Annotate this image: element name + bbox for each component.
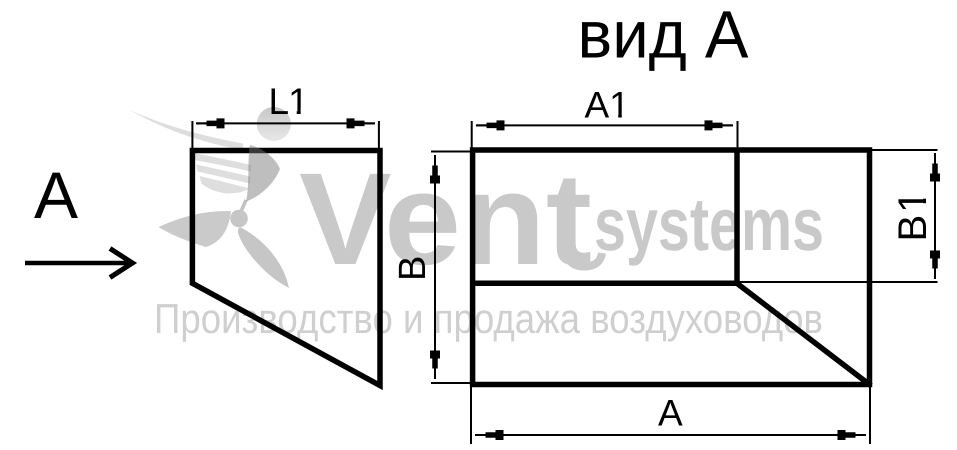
svg-text:вид А: вид А — [578, 0, 749, 73]
svg-text:Vent: Vent — [299, 145, 592, 292]
svg-text:А: А — [34, 158, 78, 232]
svg-text:В: В — [392, 256, 434, 281]
svg-text:В1: В1 — [891, 189, 935, 242]
svg-text:A: A — [658, 393, 683, 434]
svg-text:A1: A1 — [585, 85, 630, 126]
svg-text:systems: systems — [594, 182, 824, 266]
svg-text:L1: L1 — [269, 81, 308, 122]
